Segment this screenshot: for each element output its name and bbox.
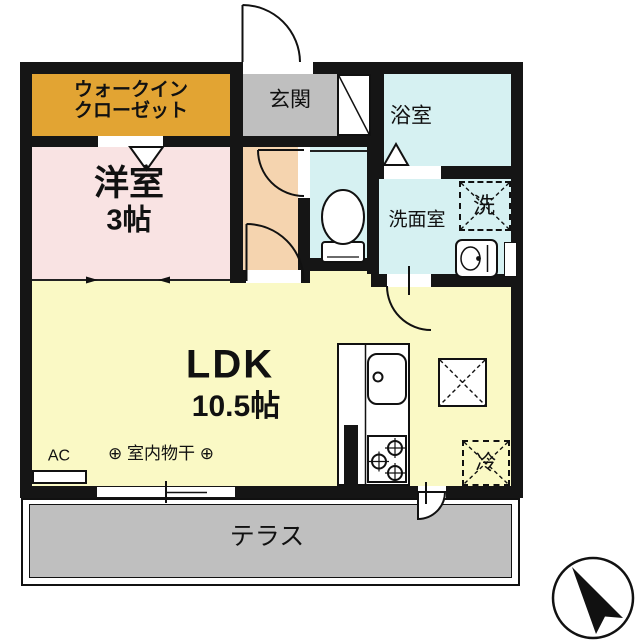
washer-label: 洗: [473, 194, 495, 218]
wall-toilet-south: [298, 258, 379, 271]
fridge-label: 冷: [476, 453, 497, 476]
shoe-cabinet: [337, 74, 371, 136]
ldk-size: 10.5帖: [192, 391, 280, 423]
entrance-label: 玄関: [269, 90, 311, 113]
toilet-shelf-line: [310, 150, 367, 152]
sliding-window: [97, 487, 235, 497]
western-room-label: 洋室: [94, 165, 164, 203]
wall-right: [511, 62, 523, 498]
wall-bath-west: [371, 62, 384, 172]
hallway-door-opening: [246, 270, 301, 283]
ldk-label: LDK: [186, 343, 274, 386]
walk-in-closet-label-1: ウォークイン: [74, 81, 188, 102]
western-room-size: 3帖: [106, 205, 151, 236]
toilet-door-opening: [298, 147, 310, 198]
room-hallway: [243, 147, 298, 270]
bath-door-opening: [384, 166, 441, 179]
kitchen-table-symbol: [438, 358, 487, 407]
air-conditioner-unit: [32, 470, 87, 484]
sliding-partition-line: [32, 279, 230, 281]
wall-bottom: [20, 486, 523, 498]
washroom-window: [504, 242, 517, 277]
entrance-door-arc: [243, 5, 301, 62]
closet-door-opening: [98, 136, 163, 147]
wall-kitchen-stub: [344, 425, 358, 486]
bathroom-label: 浴室: [390, 106, 432, 129]
wall-closet-band: [32, 136, 384, 147]
indoor-drying-label: ⊕ 室内物干 ⊕: [108, 445, 214, 463]
wall-entry-west: [230, 62, 243, 283]
wall-left: [20, 62, 32, 498]
entrance-door-opening: [243, 62, 313, 74]
walk-in-closet-label-2: クローゼット: [74, 102, 188, 123]
terrace-label: テラス: [230, 524, 305, 551]
north-arrow-icon: [553, 558, 633, 638]
washroom-label: 洗面室: [388, 211, 445, 232]
washroom-door-opening: [387, 274, 431, 287]
room-toilet: [310, 147, 367, 258]
floor-plan: ウォークイン クローゼット 玄関 浴室 洗面室 洗 洋室 3帖 LDK 10.5…: [0, 0, 640, 640]
ac-label: AC: [48, 447, 70, 464]
terrace-door-opening: [418, 486, 446, 498]
